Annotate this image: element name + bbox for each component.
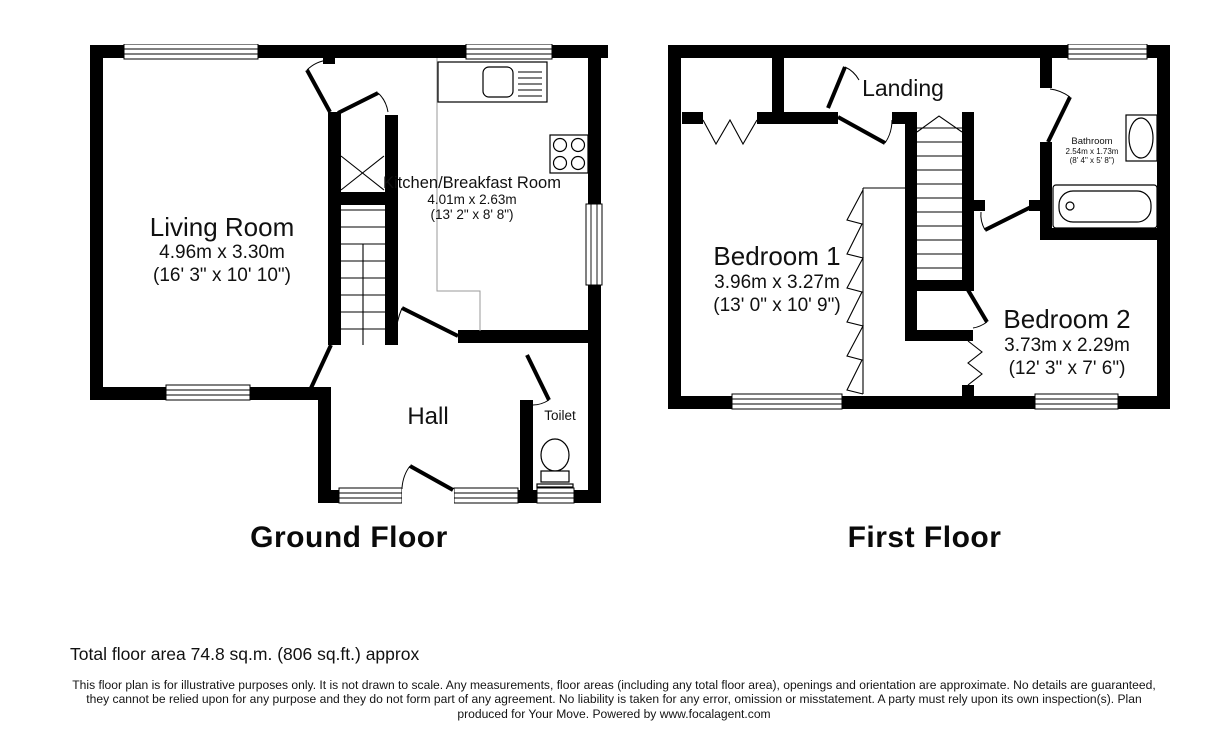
window: [586, 204, 602, 285]
bedroom2-label: Bedroom 2: [1003, 304, 1130, 334]
disclaimer-line-2: they cannot be relied upon for any purpo…: [24, 692, 1204, 706]
door-swing: [307, 60, 330, 112]
total-floor-area: Total floor area 74.8 sq.m. (806 sq.ft.)…: [70, 644, 419, 665]
window: [1035, 394, 1118, 409]
bathroom-dims-ft: (8' 4" x 5' 8"): [1070, 156, 1115, 165]
landing-label: Landing: [862, 75, 944, 101]
toilet-fixture: [537, 439, 573, 487]
hob: [550, 135, 588, 173]
toilet-label: Toilet: [544, 408, 576, 423]
door-swing: [396, 308, 458, 336]
window: [166, 385, 250, 400]
hall-label: Hall: [407, 403, 448, 430]
floorplan-page: Living Room 4.96m x 3.30m (16' 3" x 10' …: [0, 0, 1227, 752]
bath: [1053, 185, 1157, 228]
door-swing: [527, 355, 549, 405]
door-swing: [968, 290, 987, 328]
bedroom2-dims-ft: (12' 3" x 7' 6"): [1009, 358, 1126, 379]
wardrobe: [847, 188, 905, 394]
living-room-dims-ft: (16' 3" x 10' 10"): [153, 265, 291, 286]
door-swing: [338, 93, 388, 113]
window: [339, 488, 402, 503]
bedroom1-dims-m: 3.96m x 3.27m: [714, 272, 840, 293]
kitchen-dims-ft: (13' 2" x 8' 8"): [430, 207, 513, 222]
door-swing: [981, 206, 1033, 230]
window: [537, 488, 574, 503]
stairs: [917, 116, 962, 268]
front-door-opening: [402, 489, 454, 504]
door-swing: [828, 67, 859, 108]
door-swing: [402, 466, 453, 490]
living-room-dims-m: 4.96m x 3.30m: [159, 242, 285, 263]
bifold-door: [968, 341, 982, 385]
window: [1068, 44, 1147, 59]
ground-floor-title: Ground Floor: [89, 521, 609, 555]
bedroom1-dims-ft: (13' 0" x 10' 9"): [713, 295, 840, 316]
bathroom-label: Bathroom: [1071, 136, 1112, 147]
window: [732, 394, 842, 409]
door-swing: [838, 117, 892, 143]
basin: [1126, 115, 1157, 161]
window: [124, 44, 258, 59]
bifold-door: [703, 120, 757, 144]
living-room-label: Living Room: [150, 212, 295, 242]
window: [454, 488, 518, 503]
first-floor-title: First Floor: [672, 521, 1177, 555]
bedroom2-dims-m: 3.73m x 2.29m: [1004, 335, 1130, 356]
stairs: [341, 156, 385, 345]
window: [466, 44, 552, 59]
disclaimer: This floor plan is for illustrative purp…: [24, 678, 1204, 721]
bathroom-dims-m: 2.54m x 1.73m: [1066, 147, 1119, 156]
kitchen-sink: [438, 62, 547, 102]
door-swing: [1048, 89, 1070, 142]
disclaimer-line-1: This floor plan is for illustrative purp…: [24, 678, 1204, 692]
kitchen-label: Kitchen/Breakfast Room: [383, 174, 561, 192]
kitchen-dims-m: 4.01m x 2.63m: [427, 192, 516, 207]
bedroom1-label: Bedroom 1: [713, 241, 840, 271]
first-floor-plan: Landing Bedroom 1 3.96m x 3.27m (13' 0" …: [665, 44, 1170, 412]
ground-floor-plan: Living Room 4.96m x 3.30m (16' 3" x 10' …: [89, 44, 609, 506]
disclaimer-line-3: produced for Your Move. Powered by www.f…: [24, 707, 1204, 721]
